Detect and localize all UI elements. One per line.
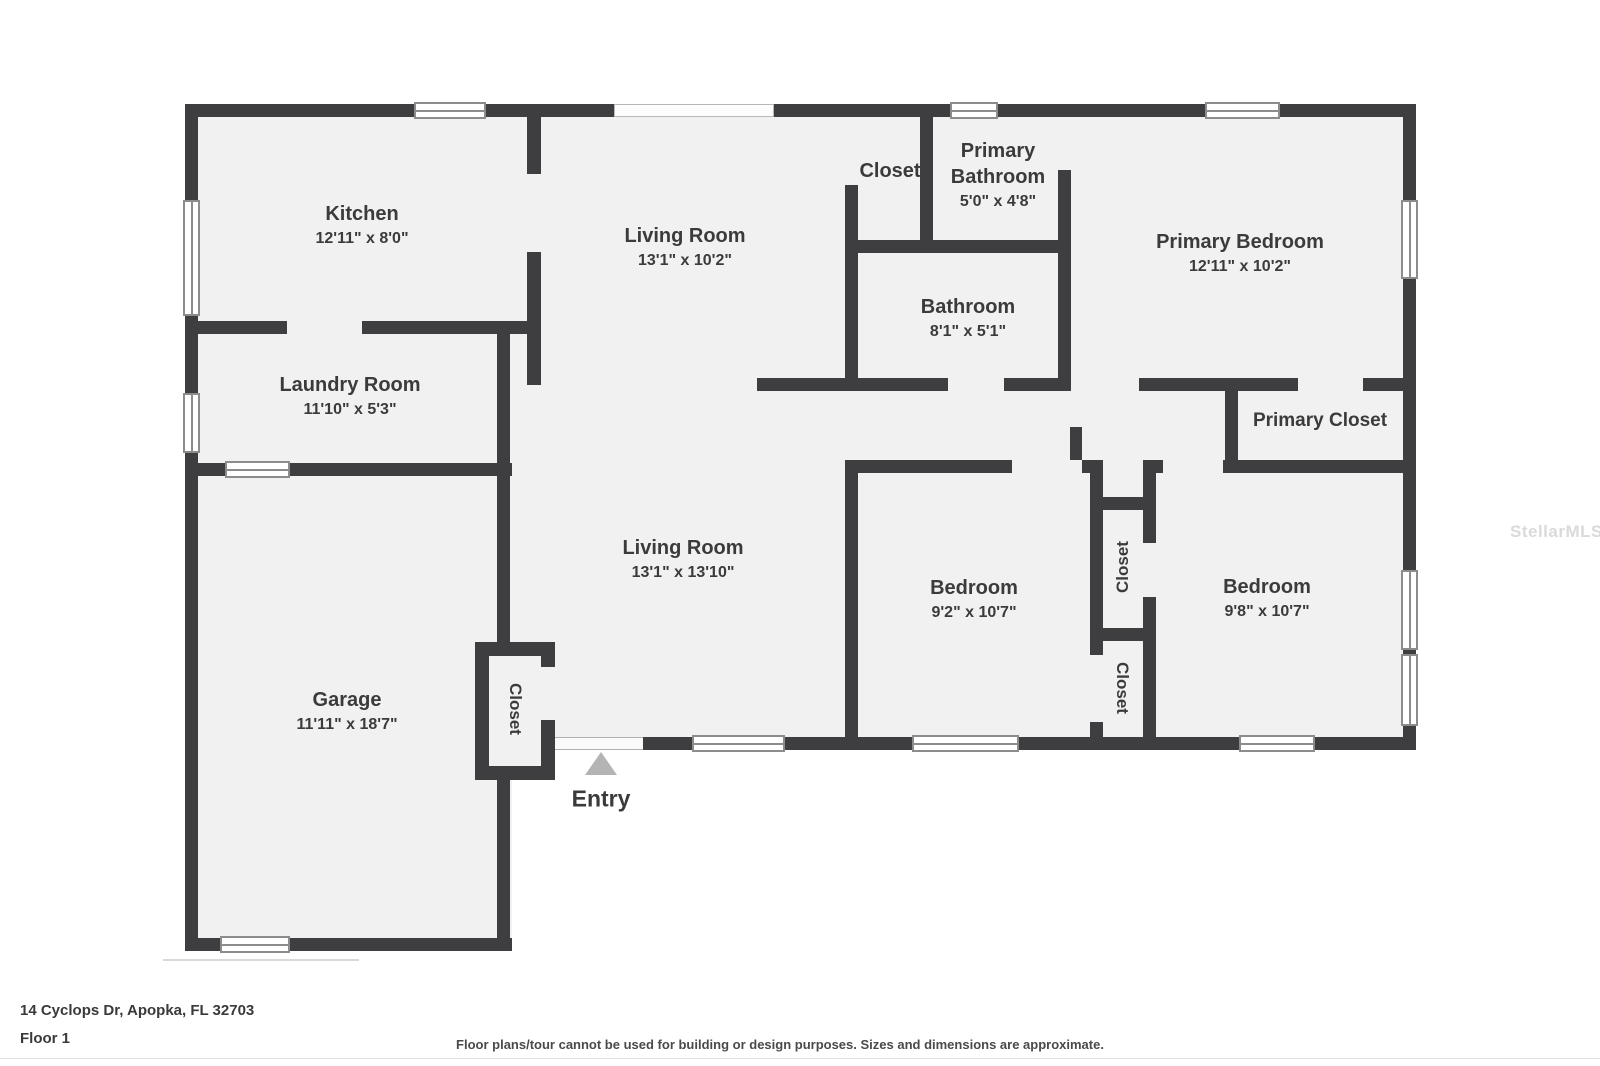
wall [497,780,510,951]
wall [1139,378,1298,391]
window [950,102,998,119]
room-label-kitchen: Kitchen 12'11" x 8'0" [315,201,408,251]
room-label-closet-hall-top: Closet [1113,541,1133,593]
wall [1363,378,1416,391]
window [614,104,774,117]
wall [845,185,858,391]
entry-door-opening [555,737,643,750]
window [1205,102,1280,119]
wall [475,642,489,780]
wall [1223,460,1416,473]
wall [1070,427,1082,460]
stellar-mls-watermark: StellarMLS [1510,522,1600,542]
room-label-bathroom: Bathroom 8'1" x 5'1" [921,294,1015,344]
room-label-closet-top: Closet [859,158,920,184]
wall [497,321,510,642]
floor-area-garage [185,750,512,951]
wall [1004,378,1071,391]
wall [845,240,1071,253]
entry-label: Entry [572,786,631,813]
wall [185,321,287,334]
room-label-closet-entry: Closet [505,683,525,735]
wall [1090,497,1156,510]
room-label-primary-bedroom: Primary Bedroom 12'11" x 10'2" [1156,229,1324,279]
wall [1225,391,1238,460]
window [414,102,486,119]
wall [845,460,1012,473]
wall [1143,460,1163,473]
window [220,936,290,953]
room-label-bedroom-1: Bedroom 9'2" x 10'7" [930,575,1018,625]
disclaimer-text: Floor plans/tour cannot be used for buil… [0,1037,1560,1052]
wall [845,460,858,750]
floor-plan-page: Kitchen 12'11" x 8'0" Living Room 13'1" … [0,0,1600,1066]
room-label-living-room-top: Living Room 13'1" x 10'2" [624,223,745,273]
wall [1090,628,1156,641]
window [183,200,200,316]
room-label-primary-bathroom: Primary Bathroom 5'0" x 4'8" [930,138,1066,214]
divider [163,959,359,961]
window [1401,200,1418,279]
window [1401,570,1418,650]
divider [0,1058,1600,1059]
room-label-garage: Garage 11'11" x 18'7" [296,687,397,737]
wall [1143,597,1156,750]
wall [527,252,541,385]
wall [362,321,541,334]
address-text: 14 Cyclops Dr, Apopka, FL 32703 [20,1002,254,1019]
wall [1082,460,1103,473]
wall [541,642,555,667]
window [1239,735,1315,752]
wall [541,720,555,780]
window [912,735,1019,752]
entry-arrow-icon [585,752,617,775]
room-label-bedroom-2: Bedroom 9'8" x 10'7" [1223,574,1311,624]
wall [757,378,948,391]
window [225,461,290,478]
window [1401,654,1418,726]
room-label-laundry-room: Laundry Room 11'10" x 5'3" [279,372,420,422]
room-label-primary-closet: Primary Closet [1253,408,1387,434]
window [692,735,785,752]
room-label-closet-hall-bottom: Closet [1112,662,1132,714]
wall [1090,722,1103,750]
window [183,393,200,453]
wall [527,117,541,174]
room-label-living-room-bottom: Living Room 13'1" x 13'10" [622,535,743,585]
